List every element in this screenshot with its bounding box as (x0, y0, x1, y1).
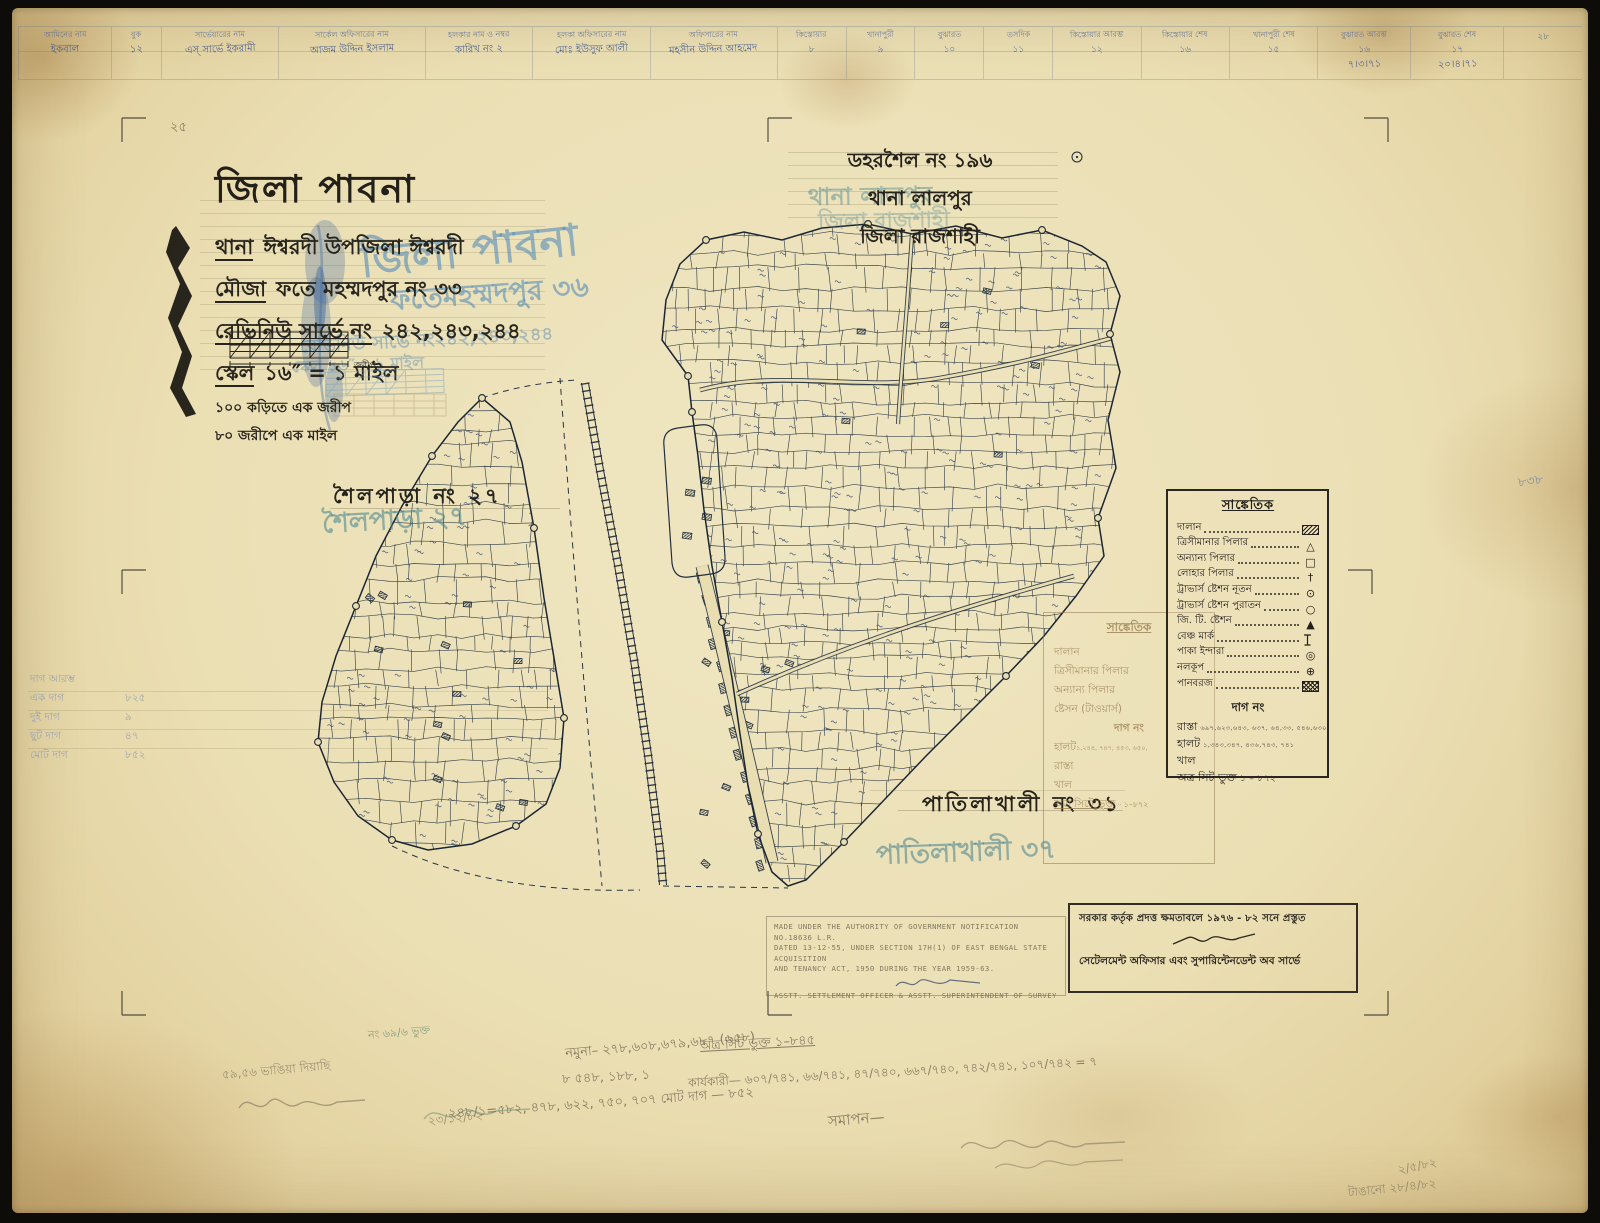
signature-squiggle (420, 1095, 550, 1131)
header-cell: হলকা অফিসারের নামমোঃ ইউসুফ আলী (532, 27, 649, 79)
pencil-note: সমাপন— (827, 1106, 886, 1136)
pencil-note: ২৫ (170, 118, 187, 139)
mouza-line: মৌজাফতে মহম্মদপুর নং ৩৩ (215, 273, 545, 308)
pencil-note: ৮৩৮ (1517, 470, 1545, 494)
header-cell: অফিসারের নামমহসীন উদ্দিন আহমেদ (650, 27, 777, 79)
english-authority-stamp: MADE UNDER THE AUTHORITY OF GOVERNMENT N… (766, 916, 1066, 996)
header-cell: বুঝারত১০ (914, 27, 983, 79)
circle-icon: ○ (1302, 604, 1319, 615)
note-row: মোট দাগ৮৫২ (30, 748, 240, 767)
dag-row: হালট১,৩৪৩,৩৪৭, ৪৩৬,৭৪৩, ৭৪১ (1177, 735, 1319, 752)
guide-line (28, 748, 548, 749)
header-cell: আমিনের নামইকবাল (18, 27, 111, 79)
dagger-icon: † (1302, 572, 1319, 583)
building-hatch-icon (1302, 525, 1319, 535)
neighbor-label-shailpara: শৈলপাড়া নং ২৭ (333, 480, 502, 515)
header-cell: সার্কেল অফিসারের নামআজম উদ্দিন ইসলাম (278, 27, 424, 79)
guide-line (28, 729, 548, 730)
filled-triangle-icon: ▲ (1302, 619, 1319, 630)
stamp-line: MADE UNDER THE AUTHORITY OF GOVERNMENT N… (774, 922, 1058, 943)
header-cell: কিস্তোয়ার৮ (777, 27, 846, 79)
header-cell: কিস্তোয়ার আরম্ভ১২ (1052, 27, 1140, 79)
stamp-line: সরকার কর্তৃক প্রদত্ত ক্ষমতাবলে ১৯৭৬ - ৮২… (1079, 911, 1347, 928)
header-cell: সার্ভেয়ারের নামএস্‌ সার্ভে ইকরামী (161, 27, 278, 79)
dag-row: রাস্তা৬৯৭,৬২৩,৬৪৩, ৬৩৭, ৬৪,৩৩, ৫৪৬,৬৩০ (1177, 718, 1319, 735)
stamp-line: AND TENANCY ACT, 1950 DURING THE YEAR 19… (774, 964, 1058, 975)
stamp-line: ASSTT. SETTLEMENT OFFICER & ASSTT. SUPER… (774, 991, 1058, 1002)
stamp-line: DATED 13-12-55, UNDER SECTION 17H(1) OF … (774, 943, 1058, 964)
district-title: জিলা পাবনা (215, 160, 545, 224)
survey-stage-header-table: আমিনের নামইকবাল বুক১২ সার্ভেয়ারের নামএস… (18, 26, 1582, 80)
dag-number-heading: দাগ নং (1177, 699, 1319, 718)
plot-count-notes: দাগ আরম্ভ এক দাগ৮২৫ দুই দাগ৯ ছুট দাগ৪৭ ম… (30, 672, 240, 767)
header-cell: খানাপুরী শেষ১৫ (1229, 27, 1317, 79)
triangle-icon: △ (1302, 541, 1319, 552)
header-cell: ২৮ (1503, 27, 1582, 79)
adjacent-district: জিলা রাজশাহী (795, 222, 1045, 255)
double-circle-icon: ◎ (1302, 650, 1319, 661)
legend-box: সাঙ্কেতিক দালান ত্রিসীমানার পিলার△ অন্যা… (1166, 489, 1329, 778)
thana-line: থানাঈশ্বরদী উপজিলা ঈশ্বরদী (215, 231, 545, 266)
adjacent-mouza-block: ডহরশৈল নং ১৯৬ থানা লালপুর জিলা রাজশাহী (795, 146, 1045, 260)
circle-plus-icon: ⊕ (1302, 666, 1319, 677)
dag-row: অত্র সিট ভুক্ত১ – ৮৭২ (1177, 769, 1319, 786)
ghost-patilakhali-stamp: পাতিলাখালী ৩৭ (875, 829, 1056, 880)
signature-squiggle (955, 1128, 1155, 1184)
note-row: দুই দাগ৯ (30, 710, 240, 729)
signature-squiggle (894, 975, 984, 991)
note-row: ছুট দাগ৪৭ (30, 729, 240, 748)
legend-title: সাঙ্কেতিক (1177, 496, 1319, 517)
guide-line (28, 691, 548, 692)
benchmark-icon (1302, 634, 1319, 646)
adjacent-thana: থানা লালপুর (795, 184, 1045, 217)
header-cell: বুঝারত শেষ১৭২০।৪।৭১ (1410, 27, 1503, 79)
circle-dot-icon: ⊙ (1302, 588, 1319, 599)
header-cell: বুঝারত আরম্ভ১৬৭।৩।৭১ (1317, 27, 1410, 79)
stamp-line: সেটেলমেন্ট অফিসার এবং সুপারিন্টেনডেন্ট অ… (1079, 954, 1347, 971)
ghost-scale-bar-2 (330, 390, 460, 430)
crosshatch-icon (1302, 681, 1319, 692)
adjacent-mouza-name: ডহরশৈল নং ১৯৬ (795, 146, 1045, 179)
note-row: দাগ আরম্ভ (30, 672, 240, 691)
ghost-legend-row: অত্র সিটে ভুক্ত ·· ১–৮৭২ (1054, 797, 1204, 816)
dag-row: খাল (1177, 752, 1319, 769)
header-cell: খানাপুরী৯ (846, 27, 915, 79)
bengali-authority-stamp: সরকার কর্তৃক প্রদত্ত ক্ষমতাবলে ১৯৭৬ - ৮২… (1068, 903, 1358, 993)
guide-line (28, 710, 548, 711)
map-sheet-scan: আমিনের নামইকবাল বুক১২ সার্ভেয়ারের নামএস… (0, 0, 1600, 1223)
header-cell: হলকার নাম ও নম্বরকারিখ নং ২ (425, 27, 533, 79)
signature-squiggle (235, 1086, 375, 1126)
legend-row: পানবরজ (1177, 677, 1319, 693)
square-icon: □ (1302, 557, 1319, 568)
signature-squiggle (1169, 930, 1259, 950)
header-cell: বুক১২ (111, 27, 161, 79)
header-cell: কিস্তোয়ার শেষ১৬ (1141, 27, 1229, 79)
note-row: এক দাগ৮২৫ (30, 691, 240, 710)
header-cell: তসদিক১১ (983, 27, 1052, 79)
